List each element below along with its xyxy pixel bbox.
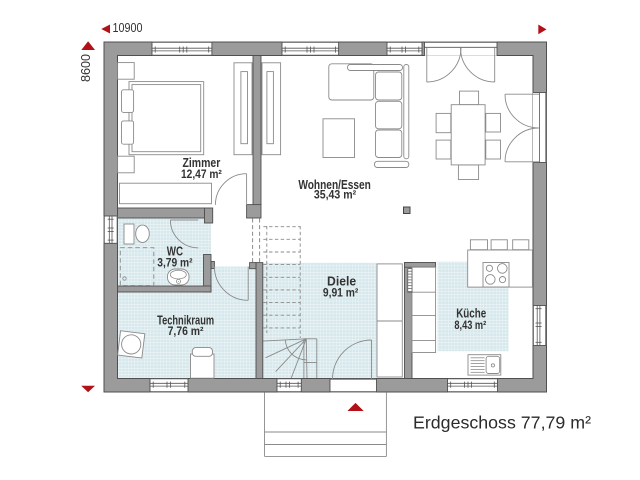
svg-text:9,91 m²: 9,91 m² bbox=[323, 285, 358, 299]
svg-text:8,43 m²: 8,43 m² bbox=[454, 318, 486, 332]
svg-text:12,47 m²: 12,47 m² bbox=[181, 167, 222, 181]
svg-text:3,79 m²: 3,79 m² bbox=[157, 256, 192, 270]
svg-text:35,43 m²: 35,43 m² bbox=[314, 188, 356, 202]
svg-text:8600: 8600 bbox=[79, 54, 93, 82]
svg-text:10900: 10900 bbox=[113, 21, 143, 35]
svg-text:7,76 m²: 7,76 m² bbox=[168, 324, 204, 338]
svg-text:Erdgeschoss 77,79 m²: Erdgeschoss 77,79 m² bbox=[413, 413, 591, 433]
